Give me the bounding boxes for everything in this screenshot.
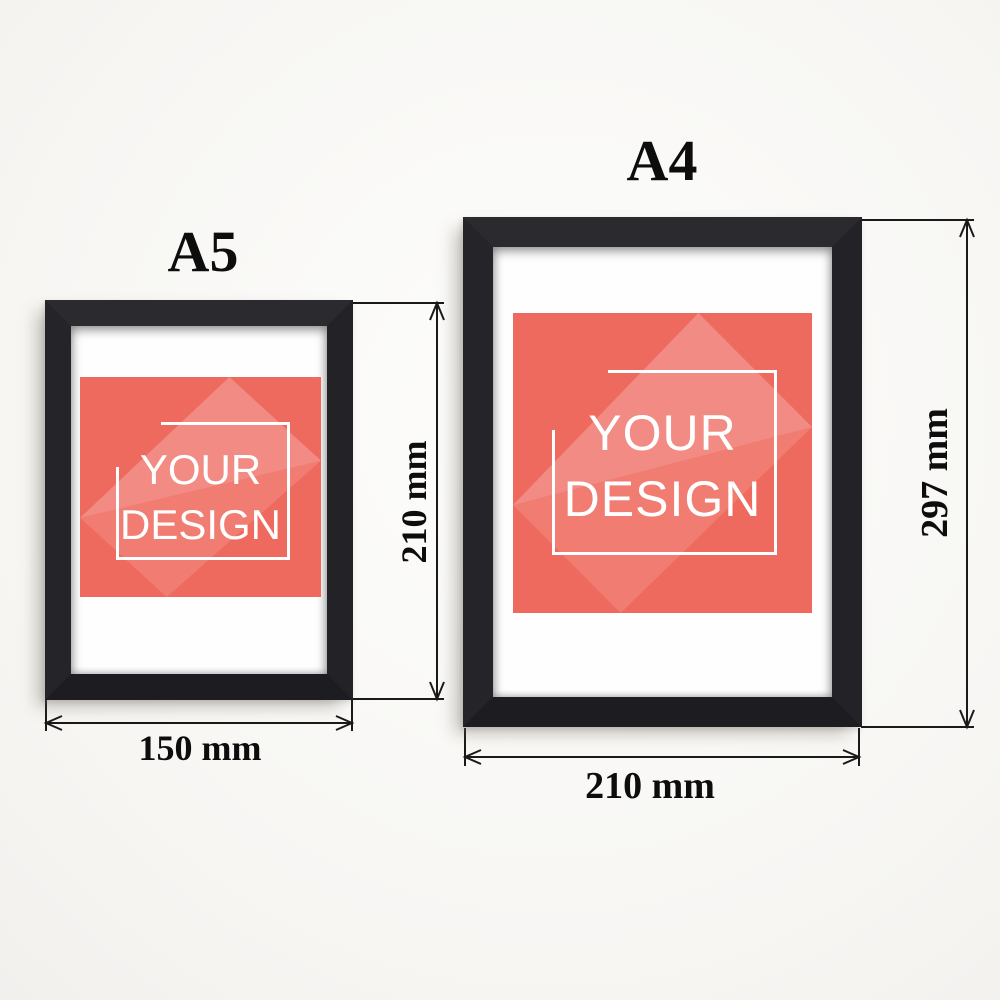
a4-artwork: YOUR DESIGN (513, 313, 812, 613)
a4-height-label: 297 mm (916, 408, 954, 538)
artwork-text-design: DESIGN (513, 474, 812, 524)
a5-artwork: YOUR DESIGN (80, 377, 321, 597)
frame-size-comparison: A5 A4 YOUR DESIGN (0, 0, 1000, 1000)
artwork-border-right (774, 370, 777, 555)
a5-width-label: 150 mm (139, 730, 262, 766)
a5-size-title: A5 (168, 223, 239, 281)
a5-mat: YOUR DESIGN (71, 326, 327, 674)
artwork-text-design: DESIGN (80, 504, 321, 546)
artwork-text-your: YOUR (80, 449, 321, 491)
a5-picture-frame: YOUR DESIGN (45, 300, 353, 700)
artwork-text-your: YOUR (513, 408, 812, 458)
a4-size-title: A4 (627, 132, 698, 190)
a4-width-label: 210 mm (585, 767, 715, 805)
artwork-border-top (161, 422, 290, 425)
artwork-border-bottom (552, 552, 777, 555)
a5-width-dimension (46, 700, 352, 731)
a4-mat: YOUR DESIGN (493, 247, 832, 697)
artwork-border-bottom (116, 557, 290, 560)
a4-picture-frame: YOUR DESIGN (463, 217, 862, 727)
a4-width-dimension (465, 728, 859, 766)
artwork-border-top (608, 370, 777, 373)
a5-height-label: 210 mm (396, 441, 432, 564)
